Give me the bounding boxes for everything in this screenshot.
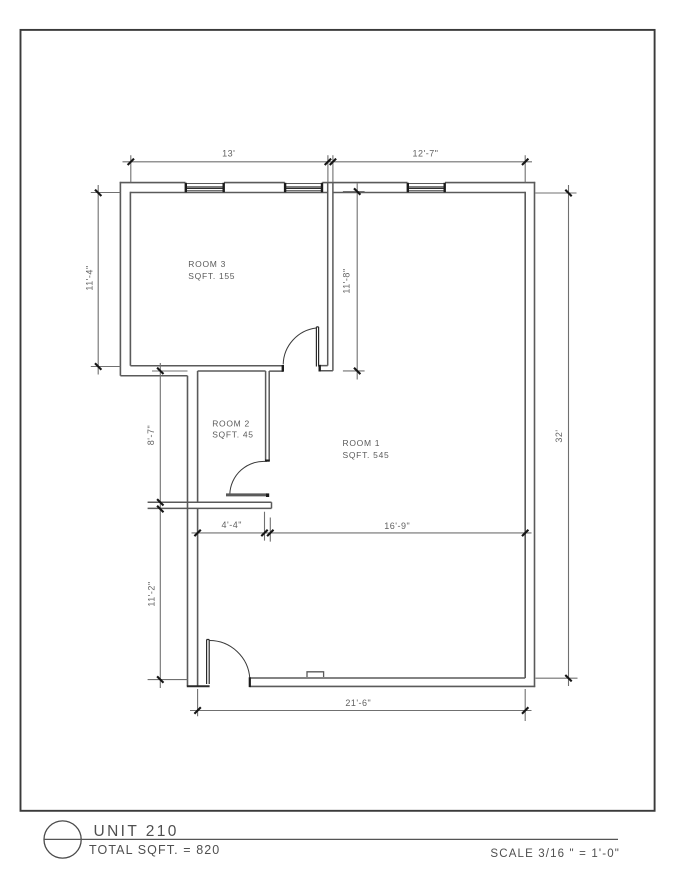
svg-text:21'-6": 21'-6" [345,698,371,708]
svg-text:UNIT 210: UNIT 210 [94,823,179,840]
svg-text:ROOM 1: ROOM 1 [343,438,381,448]
svg-text:ROOM 3: ROOM 3 [188,259,226,269]
svg-text:TOTAL SQFT. = 820: TOTAL SQFT. = 820 [89,843,220,857]
svg-text:8'-7": 8'-7" [146,425,156,445]
svg-text:ROOM 2: ROOM 2 [212,418,250,428]
svg-text:SQFT. 545: SQFT. 545 [343,450,390,460]
svg-text:32': 32' [554,429,564,442]
svg-text:11'-4": 11'-4" [85,265,95,290]
svg-text:SQFT. 45: SQFT. 45 [212,430,254,440]
svg-text:12'-7": 12'-7" [413,149,439,159]
svg-text:13': 13' [222,149,235,159]
svg-text:16'-9": 16'-9" [384,521,410,531]
svg-text:SCALE 3/16 " = 1'-0": SCALE 3/16 " = 1'-0" [490,848,620,860]
svg-text:11'-8": 11'-8" [341,268,351,293]
svg-text:11'-2": 11'-2" [147,581,157,606]
svg-text:SQFT. 155: SQFT. 155 [188,271,235,281]
svg-text:4'-4": 4'-4" [221,520,241,530]
